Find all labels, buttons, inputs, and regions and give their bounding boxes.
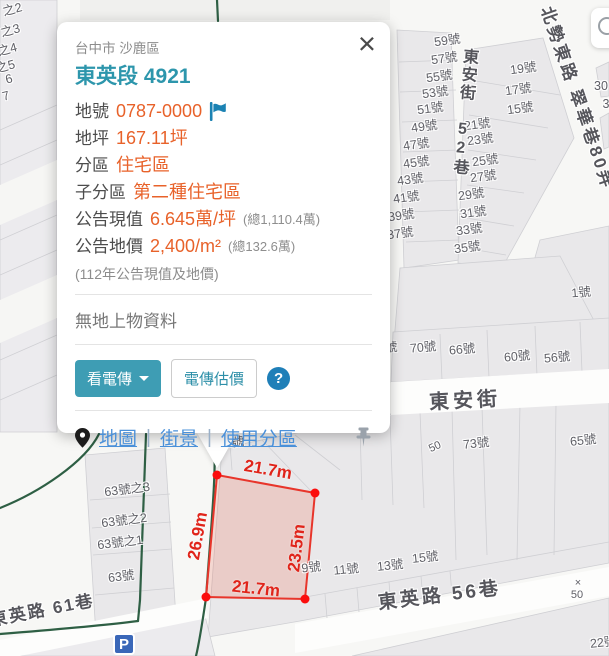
row-label: 子分區 — [75, 179, 126, 206]
view-fax-label: 看電傳 — [87, 368, 132, 389]
row-value: 167.11坪 — [116, 125, 188, 152]
parcel-vertex[interactable] — [301, 595, 310, 604]
survey-marker-number: 50 — [571, 589, 583, 601]
survey-marker-x: × — [575, 577, 581, 589]
house-number: 30 — [594, 79, 608, 93]
info-row-land-area: 地坪 167.11坪 — [75, 125, 372, 152]
close-icon[interactable]: × — [358, 32, 376, 55]
flag-icon — [209, 102, 229, 121]
location-pin-icon — [75, 428, 90, 448]
house-number: 11號 — [332, 557, 359, 579]
divider — [75, 294, 372, 295]
house-number: 70號 — [409, 335, 437, 356]
map-control-button[interactable] — [591, 8, 609, 48]
house-number: 56號 — [543, 345, 571, 366]
house-number: 15號 — [411, 545, 439, 567]
fax-estimate-button[interactable]: 電傳估價 — [171, 359, 257, 398]
parking-icon: P — [113, 633, 135, 655]
parcel-info-popup: × 台中市 沙鹿區 東英段 4921 地號 0787-0000 地坪 167.1… — [57, 22, 390, 433]
action-buttons-row: 看電傳 電傳估價 ? — [75, 359, 372, 398]
link-separator: | — [146, 427, 151, 449]
row-label: 公告地價 — [75, 233, 143, 260]
row-label: 公告現值 — [75, 206, 143, 233]
no-structure-text: 無地上物資料 — [75, 307, 372, 332]
row-value: 2,400/m² — [150, 233, 221, 260]
view-fax-button[interactable]: 看電傳 — [75, 360, 161, 397]
house-number: 66號 — [448, 337, 476, 358]
row-value: 0787-0000 — [116, 98, 202, 125]
map-link[interactable]: 地圖 — [99, 424, 137, 451]
zoning-link[interactable]: 使用分區 — [221, 424, 297, 451]
house-number: 13號 — [376, 553, 404, 575]
house-number: 19號 — [509, 56, 538, 78]
house-number: 35號 — [453, 235, 482, 257]
info-row-announced-price: 公告地價 2,400/m² (總132.6萬) — [75, 233, 372, 260]
row-label: 地坪 — [75, 125, 109, 152]
info-row-subzoning: 子分區 第二種住宅區 — [75, 179, 372, 206]
row-value: 第二種住宅區 — [133, 179, 241, 206]
house-number: 65號 — [569, 428, 597, 450]
row-extra: (總132.6萬) — [228, 233, 295, 260]
info-row-announced-value: 公告現值 6.645萬/坪 (總1,110.4萬) — [75, 206, 372, 233]
house-number: 73號 — [462, 431, 490, 453]
help-icon[interactable]: ? — [267, 367, 290, 390]
house-number: 15號 — [506, 96, 535, 118]
pushpin-icon[interactable] — [355, 427, 372, 448]
row-label: 地號 — [75, 98, 109, 125]
row-extra: (總1,110.4萬) — [243, 206, 320, 233]
chevron-down-icon — [139, 376, 149, 381]
link-separator: | — [207, 427, 212, 449]
map-viewport: 59號 57號 55號 53號 51號 49號 47號 45號 43號 41號 … — [0, 0, 609, 656]
row-value: 住宅區 — [116, 152, 170, 179]
region-label: 台中市 沙鹿區 — [75, 37, 372, 57]
street-view-link[interactable]: 街景 — [160, 424, 198, 451]
row-label: 分區 — [75, 152, 109, 179]
row-value: 6.645萬/坪 — [150, 206, 236, 233]
parcel-vertex[interactable] — [202, 593, 211, 602]
valuation-year-note: (112年公告現值及地價) — [75, 264, 372, 284]
parcel-vertex[interactable] — [213, 471, 222, 480]
divider — [75, 410, 372, 411]
house-number: 3 — [603, 97, 609, 111]
footer-links-row: 地圖 | 街景 | 使用分區 — [75, 424, 372, 451]
map-control-circle-icon — [598, 17, 609, 35]
street-label-dongan-street: 東安街 — [428, 382, 501, 415]
house-number: 22號 — [589, 630, 609, 652]
parcel-title: 東英段 4921 — [75, 60, 372, 90]
house-number: 1號 — [570, 281, 591, 302]
info-row-zoning: 分區 住宅區 — [75, 152, 372, 179]
parcel-vertex[interactable] — [311, 489, 320, 498]
house-number: 60號 — [503, 344, 531, 365]
info-row-land-number: 地號 0787-0000 — [75, 98, 372, 125]
divider — [75, 344, 372, 345]
house-number: 63號 — [107, 564, 136, 586]
